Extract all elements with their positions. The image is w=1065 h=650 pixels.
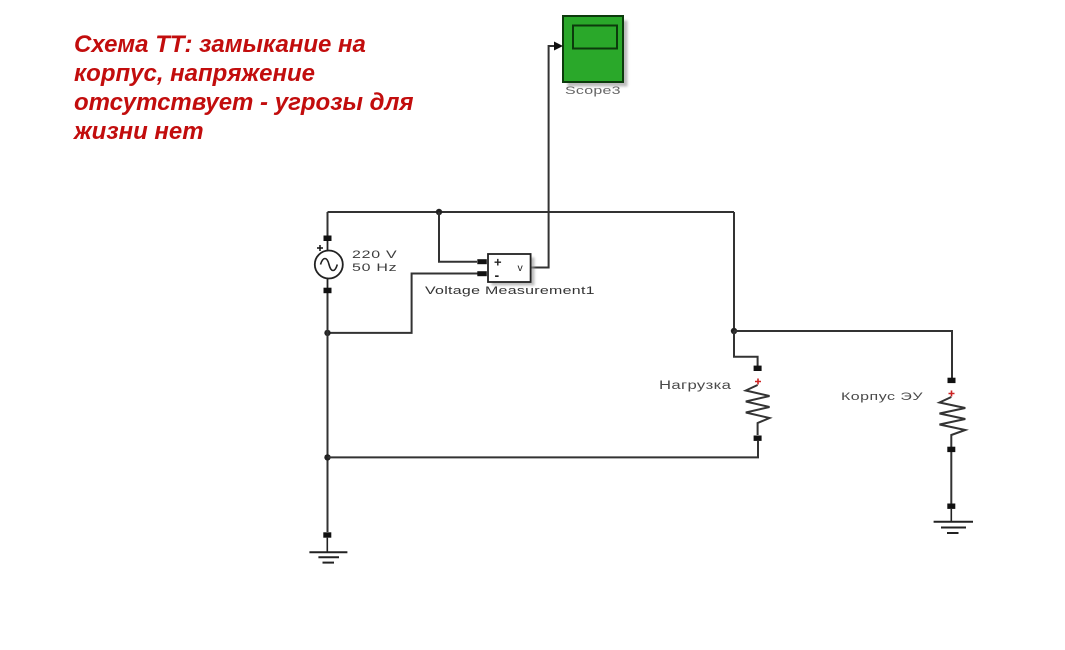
svg-text:v: v [518, 262, 524, 274]
svg-text:-: - [495, 267, 500, 283]
